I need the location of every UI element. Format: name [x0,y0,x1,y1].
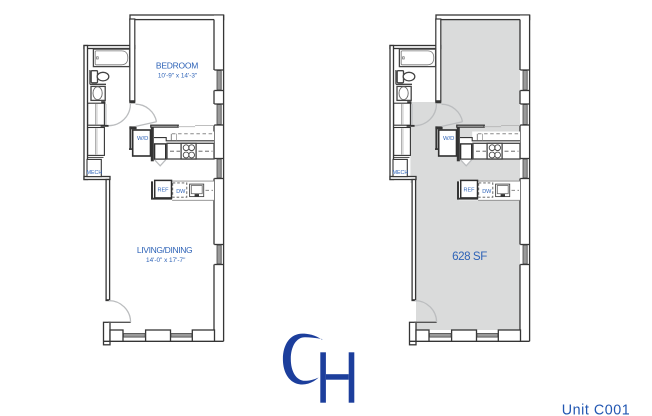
svg-text:BEDROOM: BEDROOM [156,61,198,71]
svg-text:REF: REF [464,187,476,193]
svg-text:W/D: W/D [137,136,148,142]
svg-text:REF: REF [158,187,170,193]
svg-text:MECH: MECH [393,170,409,176]
svg-text:628 SF: 628 SF [452,250,487,263]
svg-text:MECH: MECH [87,170,103,176]
svg-text:Unit C001: Unit C001 [562,403,631,416]
svg-text:DW: DW [482,189,492,195]
svg-text:14'-0" x 17'-7": 14'-0" x 17'-7" [146,257,185,264]
svg-text:DW: DW [176,189,186,195]
svg-text:LIVING/DINING: LIVING/DINING [137,245,192,255]
svg-text:W/D: W/D [443,136,454,142]
svg-text:10'-9" x 14'-3": 10'-9" x 14'-3" [158,72,197,79]
